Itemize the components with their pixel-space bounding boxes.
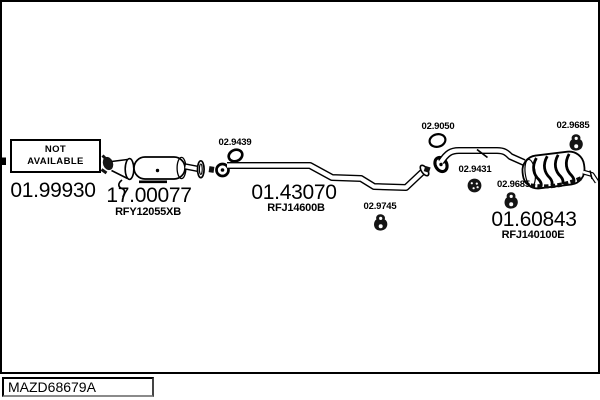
part-ref-centre-pipe: RFJ14600B (267, 202, 325, 214)
hanger-ring-icon-9439 (227, 148, 244, 164)
grommet-icon-9431 (468, 179, 482, 193)
diagram-code-box: MAZD68679A (2, 377, 154, 397)
tailpipe-flange-tick (590, 171, 592, 180)
joint-donut-center (439, 163, 442, 166)
flange-gasket-hole (221, 168, 225, 172)
inlet-cone-mouth (125, 159, 134, 180)
hanger-icon-9745 (374, 214, 387, 230)
outlet-flange (198, 161, 205, 178)
fitting-code-9439: 02.9439 (219, 137, 252, 148)
hanger-icon-9685-tail (570, 134, 583, 150)
exhaust-parts-diagram-page: NOT AVAILABLE 01.99930 17.00077 RFY12055… (0, 0, 600, 400)
part-number-front-pipe: 01.99930 (10, 179, 95, 203)
not-available-box: NOT AVAILABLE (10, 139, 101, 173)
fitting-code-9050: 02.9050 (422, 121, 455, 132)
not-available-line2: AVAILABLE (27, 156, 84, 168)
bolt-icon (209, 166, 215, 173)
flange-stud-icon (102, 170, 107, 174)
outlet-stub-core (186, 167, 199, 170)
fitting-code-9745: 02.9745 (364, 201, 397, 212)
part-number-catalyst: 17.00077 (106, 184, 191, 208)
hanger-icon-9685-mid (505, 192, 518, 208)
not-available-line1: NOT (45, 144, 66, 156)
fitting-code-9431: 02.9431 (459, 164, 492, 175)
sensor-boss-dot (156, 169, 159, 172)
inlet-cone-line (112, 160, 128, 162)
part-ref-catalyst: RFY12055XB (115, 206, 181, 218)
diagram-code: MAZD68679A (8, 379, 96, 395)
fitting-code-9685-tail: 02.9685 (557, 120, 590, 131)
gasket-ring-icon-9050 (428, 133, 447, 149)
rear-silencer-drawing (521, 150, 587, 190)
fitting-code-9685-mid: 02.9685 (497, 179, 530, 190)
rear-pipe-drawing (441, 150, 524, 163)
tailpipe-drawing (583, 171, 597, 183)
pipe-continuation-tick (0, 158, 6, 166)
part-ref-rear-silencer: RFJ140100E (502, 229, 565, 241)
